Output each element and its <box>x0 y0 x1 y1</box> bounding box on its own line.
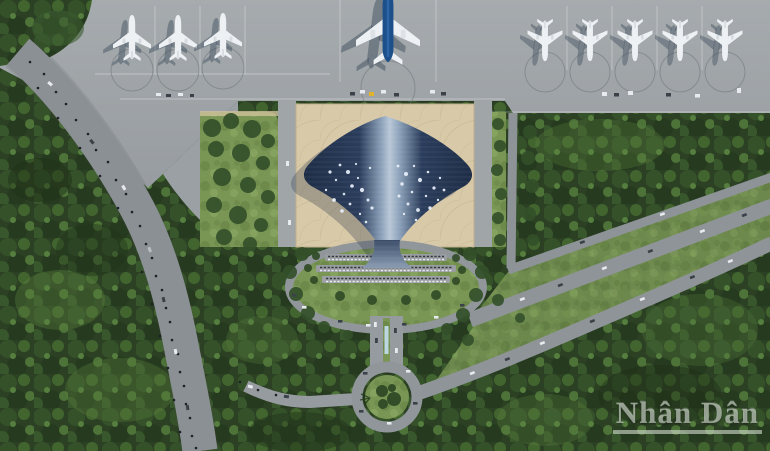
scene-canvas <box>0 0 770 451</box>
roundabout <box>357 367 417 427</box>
service-road-vertical <box>511 113 513 268</box>
nhan-dan-watermark: Nhân Dân <box>613 397 762 434</box>
yellow-service-vehicle <box>369 92 374 96</box>
linear-fountain <box>385 326 389 354</box>
aerial-airport-rendering: Nhân Dân <box>0 0 770 451</box>
